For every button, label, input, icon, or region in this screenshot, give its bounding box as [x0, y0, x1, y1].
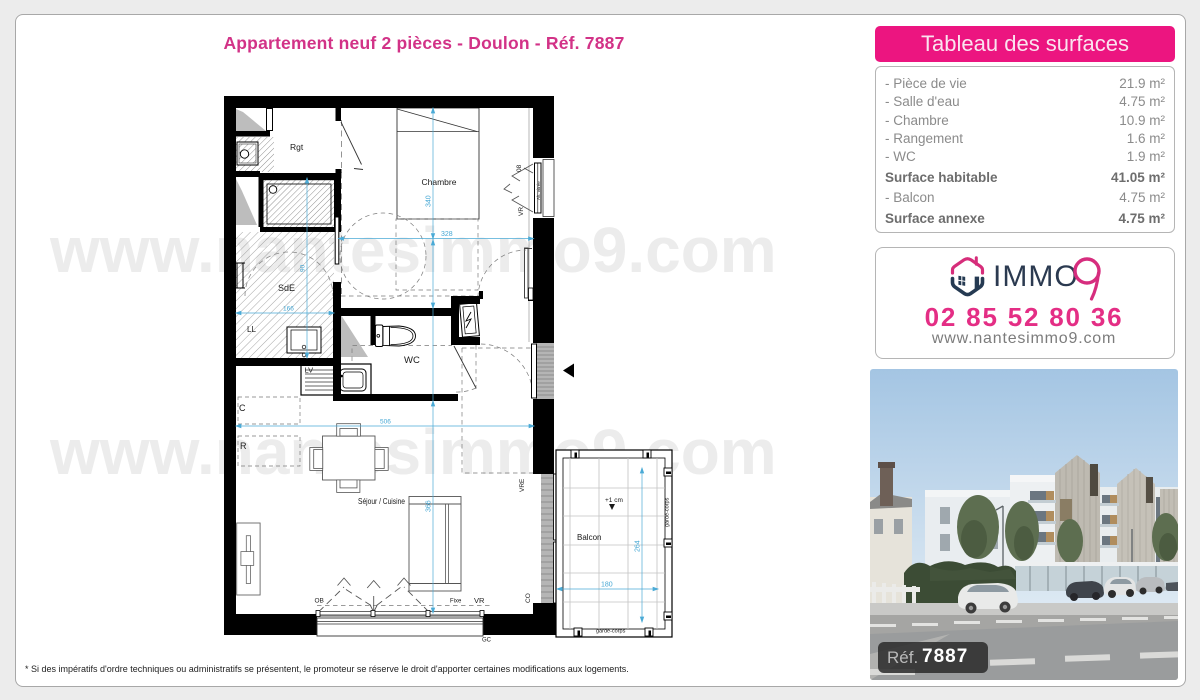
svg-text:Séjour / Cuisine: Séjour / Cuisine — [358, 496, 405, 506]
svg-text:garde-corps: garde-corps — [665, 497, 671, 527]
svg-text:Fixe: Fixe — [450, 599, 462, 605]
svg-text:CO: CO — [525, 593, 532, 603]
svg-text:VR: VR — [518, 207, 525, 216]
svg-text:GC: GC — [482, 638, 492, 644]
svg-text:Balcon: Balcon — [577, 533, 601, 542]
svg-text:SdE: SdE — [278, 283, 295, 293]
svg-text:VR: VR — [474, 596, 485, 605]
svg-text:90: 90 — [300, 264, 307, 272]
svg-text:340: 340 — [426, 195, 433, 207]
svg-text:264: 264 — [635, 540, 642, 552]
svg-text:166: 166 — [283, 306, 294, 313]
svg-text:Rgt: Rgt — [290, 142, 304, 152]
svg-text:IMMO: IMMO — [993, 260, 1079, 293]
svg-text:garde-corps: garde-corps — [596, 629, 626, 635]
svg-text:+1 cm: +1 cm — [605, 497, 623, 504]
svg-text:328: 328 — [441, 231, 453, 238]
svg-text:C: C — [239, 403, 246, 413]
svg-text:OB: OB — [315, 598, 324, 605]
svg-text:02 85 52 80 36: 02 85 52 80 36 — [925, 302, 1124, 332]
svg-text:LL: LL — [247, 325, 256, 334]
svg-text:LV: LV — [305, 366, 314, 375]
svg-text:506: 506 — [380, 419, 391, 426]
svg-text:08: 08 — [516, 164, 523, 172]
svg-text:VRE: VRE — [519, 478, 526, 492]
svg-text:R: R — [240, 441, 247, 451]
svg-text:366: 366 — [426, 500, 433, 512]
svg-text:Chambre: Chambre — [422, 177, 457, 187]
svg-text:Alt. vitrée: Alt. vitrée — [536, 181, 541, 200]
svg-text:www.nantesimmo9.com: www.nantesimmo9.com — [931, 330, 1116, 347]
svg-text:WC: WC — [404, 355, 420, 366]
svg-text:180: 180 — [601, 582, 613, 589]
